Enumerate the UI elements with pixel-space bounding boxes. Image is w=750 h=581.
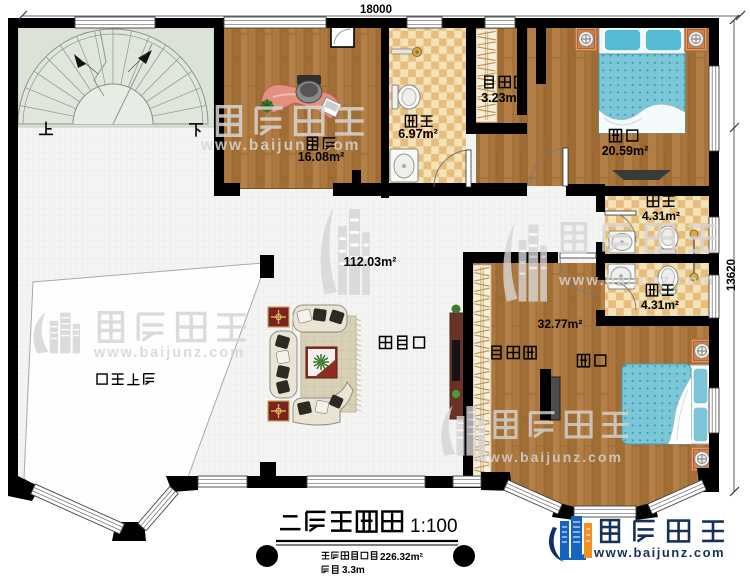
svg-text:3.3m: 3.3m bbox=[342, 565, 365, 576]
svg-text:www.baijunz.com: www.baijunz.com bbox=[475, 449, 623, 465]
svg-text:13620: 13620 bbox=[726, 259, 738, 291]
svg-text:20.59m²: 20.59m² bbox=[602, 144, 649, 158]
svg-text:3.23m²: 3.23m² bbox=[481, 91, 521, 105]
svg-text:112.03m²: 112.03m² bbox=[344, 255, 397, 269]
svg-text:18000: 18000 bbox=[360, 4, 392, 16]
svg-text:16.08m²: 16.08m² bbox=[298, 150, 345, 164]
svg-text:1:100: 1:100 bbox=[410, 516, 458, 537]
svg-text:www.baijunz.com: www.baijunz.com bbox=[558, 272, 714, 289]
svg-text:www.baijunz.com: www.baijunz.com bbox=[593, 545, 725, 560]
svg-text:6.97m²: 6.97m² bbox=[398, 127, 438, 141]
svg-text:www.baijunz.com: www.baijunz.com bbox=[93, 345, 245, 361]
svg-text:32.77m²: 32.77m² bbox=[538, 317, 583, 331]
svg-text:4.31m²: 4.31m² bbox=[642, 209, 680, 223]
svg-text:4.31m²: 4.31m² bbox=[641, 298, 679, 312]
svg-text:226.32m²: 226.32m² bbox=[380, 552, 423, 563]
